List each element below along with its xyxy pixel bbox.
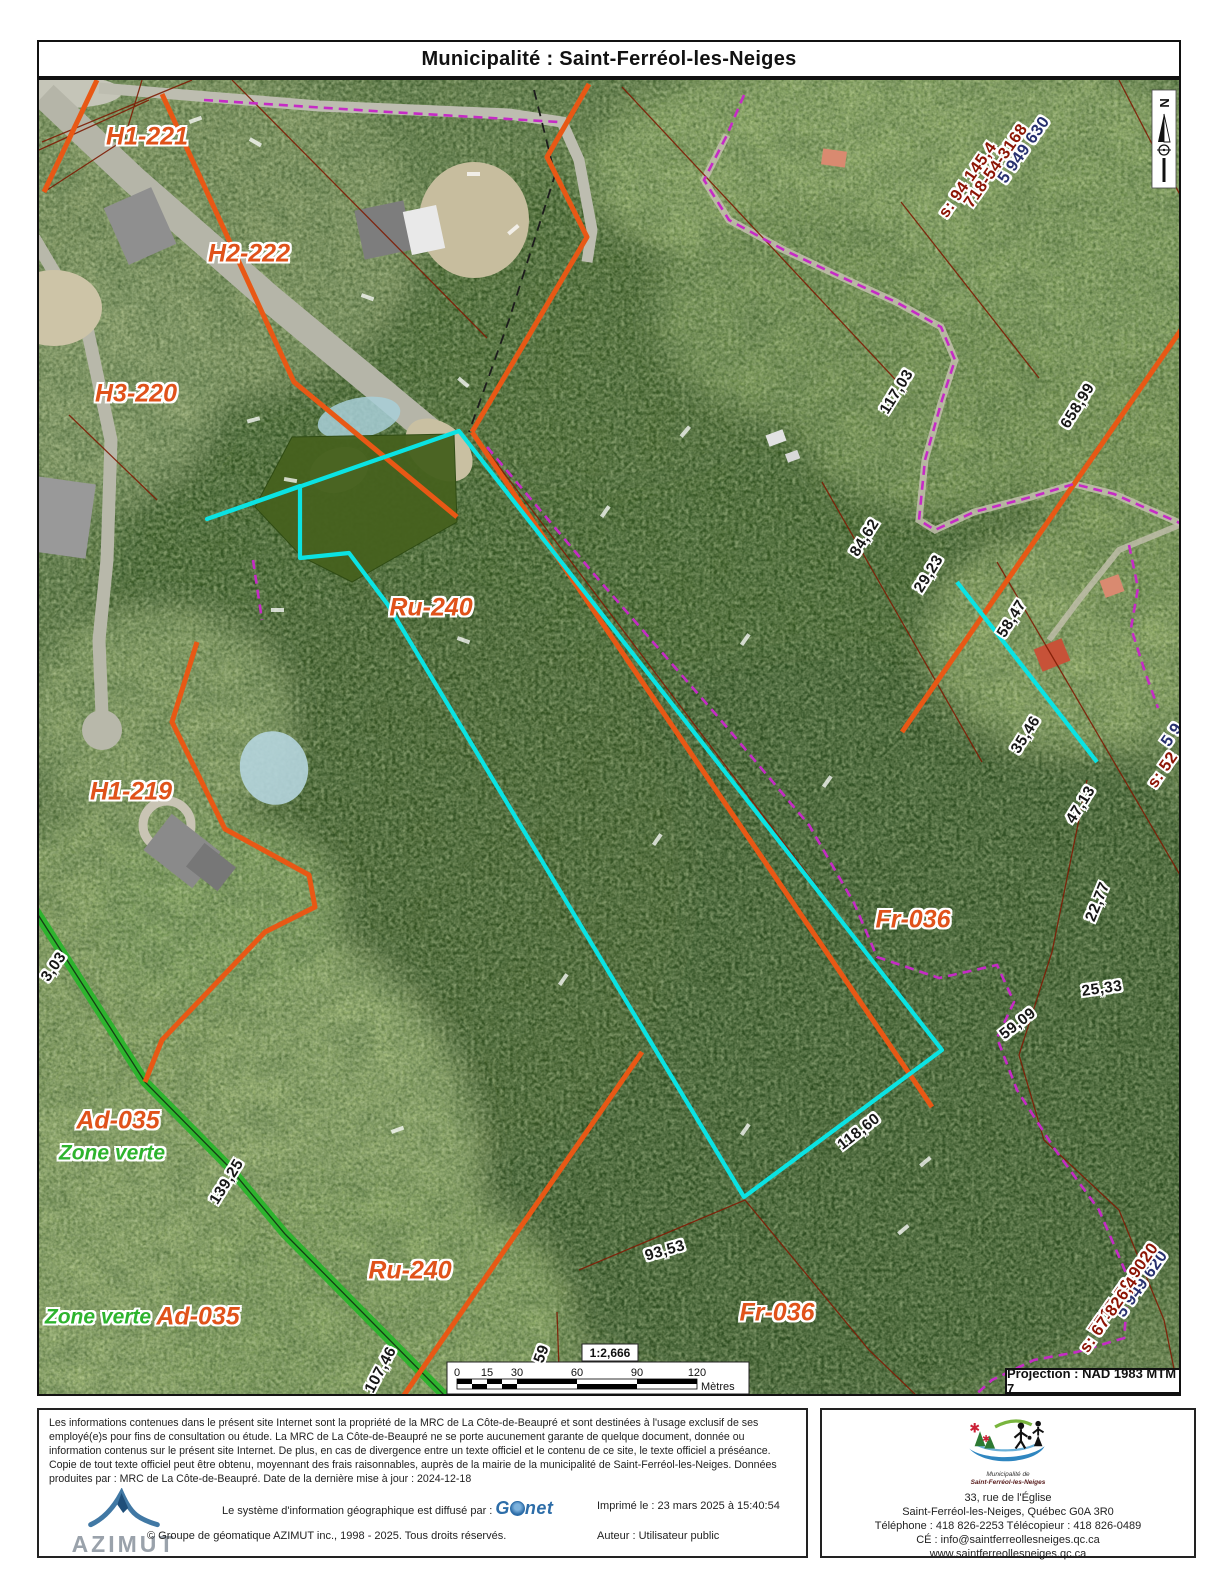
azimut-mountain-icon [76, 1488, 172, 1528]
municipality-logo-caption: Municipalité de Saint-Ferréol-les-Neiges [822, 1471, 1194, 1487]
map-canvas[interactable]: N 0 15 30 60 90 120 [37, 78, 1181, 1396]
gonet-globe-icon [510, 1501, 525, 1516]
footer-municipality-panel: ✱ ✱ Municipalité de Saint-Ferréol-les-Ne… [820, 1408, 1196, 1558]
svg-text:✱: ✱ [982, 1434, 990, 1445]
diffusion-line: Le système d'information géographique es… [222, 1498, 553, 1519]
aerial-map-graphics: N 0 15 30 60 90 120 [39, 80, 1181, 1396]
author-text: Auteur : Utilisateur public [597, 1530, 719, 1542]
page-title: Municipalité : Saint-Ferréol-les-Neiges [421, 48, 796, 71]
north-arrow: N [1152, 90, 1176, 188]
projection-label: Projection : NAD 1983 MTM 7 [1007, 1366, 1180, 1396]
svg-text:120: 120 [688, 1367, 706, 1379]
address-line: 33, rue de l'Église [822, 1491, 1194, 1505]
svg-text:15: 15 [481, 1367, 493, 1379]
disclaimer-text: Les informations contenues dans le prése… [49, 1416, 797, 1486]
address-line: CÉ : info@saintferreollesneiges.qc.ca [822, 1533, 1194, 1547]
svg-text:✱: ✱ [969, 1420, 980, 1435]
svg-text:0: 0 [454, 1367, 460, 1379]
footer-legal-panel: Les informations contenues dans le prése… [37, 1408, 808, 1558]
azimut-logo: AZIMUT [49, 1488, 199, 1558]
svg-text:1:2,666: 1:2,666 [590, 1346, 631, 1360]
address-line: Téléphone : 418 826-2253 Télécopieur : 4… [822, 1519, 1194, 1533]
address-line: www.saintferreollesneiges.qc.ca [822, 1547, 1194, 1561]
gonet-logo: Gnet [495, 1498, 553, 1518]
municipality-address: 33, rue de l'Église Saint-Ferréol-les-Ne… [822, 1491, 1194, 1561]
address-line: Saint-Ferréol-les-Neiges, Québec G0A 3R0 [822, 1505, 1194, 1519]
svg-text:30: 30 [511, 1367, 523, 1379]
svg-text:Mètres: Mètres [701, 1381, 735, 1393]
municipality-logo: ✱ ✱ [953, 1414, 1063, 1470]
copyright-text: © Groupe de géomatique AZIMUT inc., 1998… [147, 1530, 506, 1542]
svg-text:60: 60 [571, 1367, 583, 1379]
printed-date: Imprimé le : 23 mars 2025 à 15:40:54 [597, 1500, 780, 1512]
svg-text:N: N [1157, 98, 1172, 107]
map-title-bar: Municipalité : Saint-Ferréol-les-Neiges [37, 40, 1181, 78]
projection-box: Projection : NAD 1983 MTM 7 [1005, 1368, 1181, 1394]
print-page: Municipalité : Saint-Ferréol-les-Neiges [0, 0, 1224, 1584]
svg-text:90: 90 [631, 1367, 643, 1379]
